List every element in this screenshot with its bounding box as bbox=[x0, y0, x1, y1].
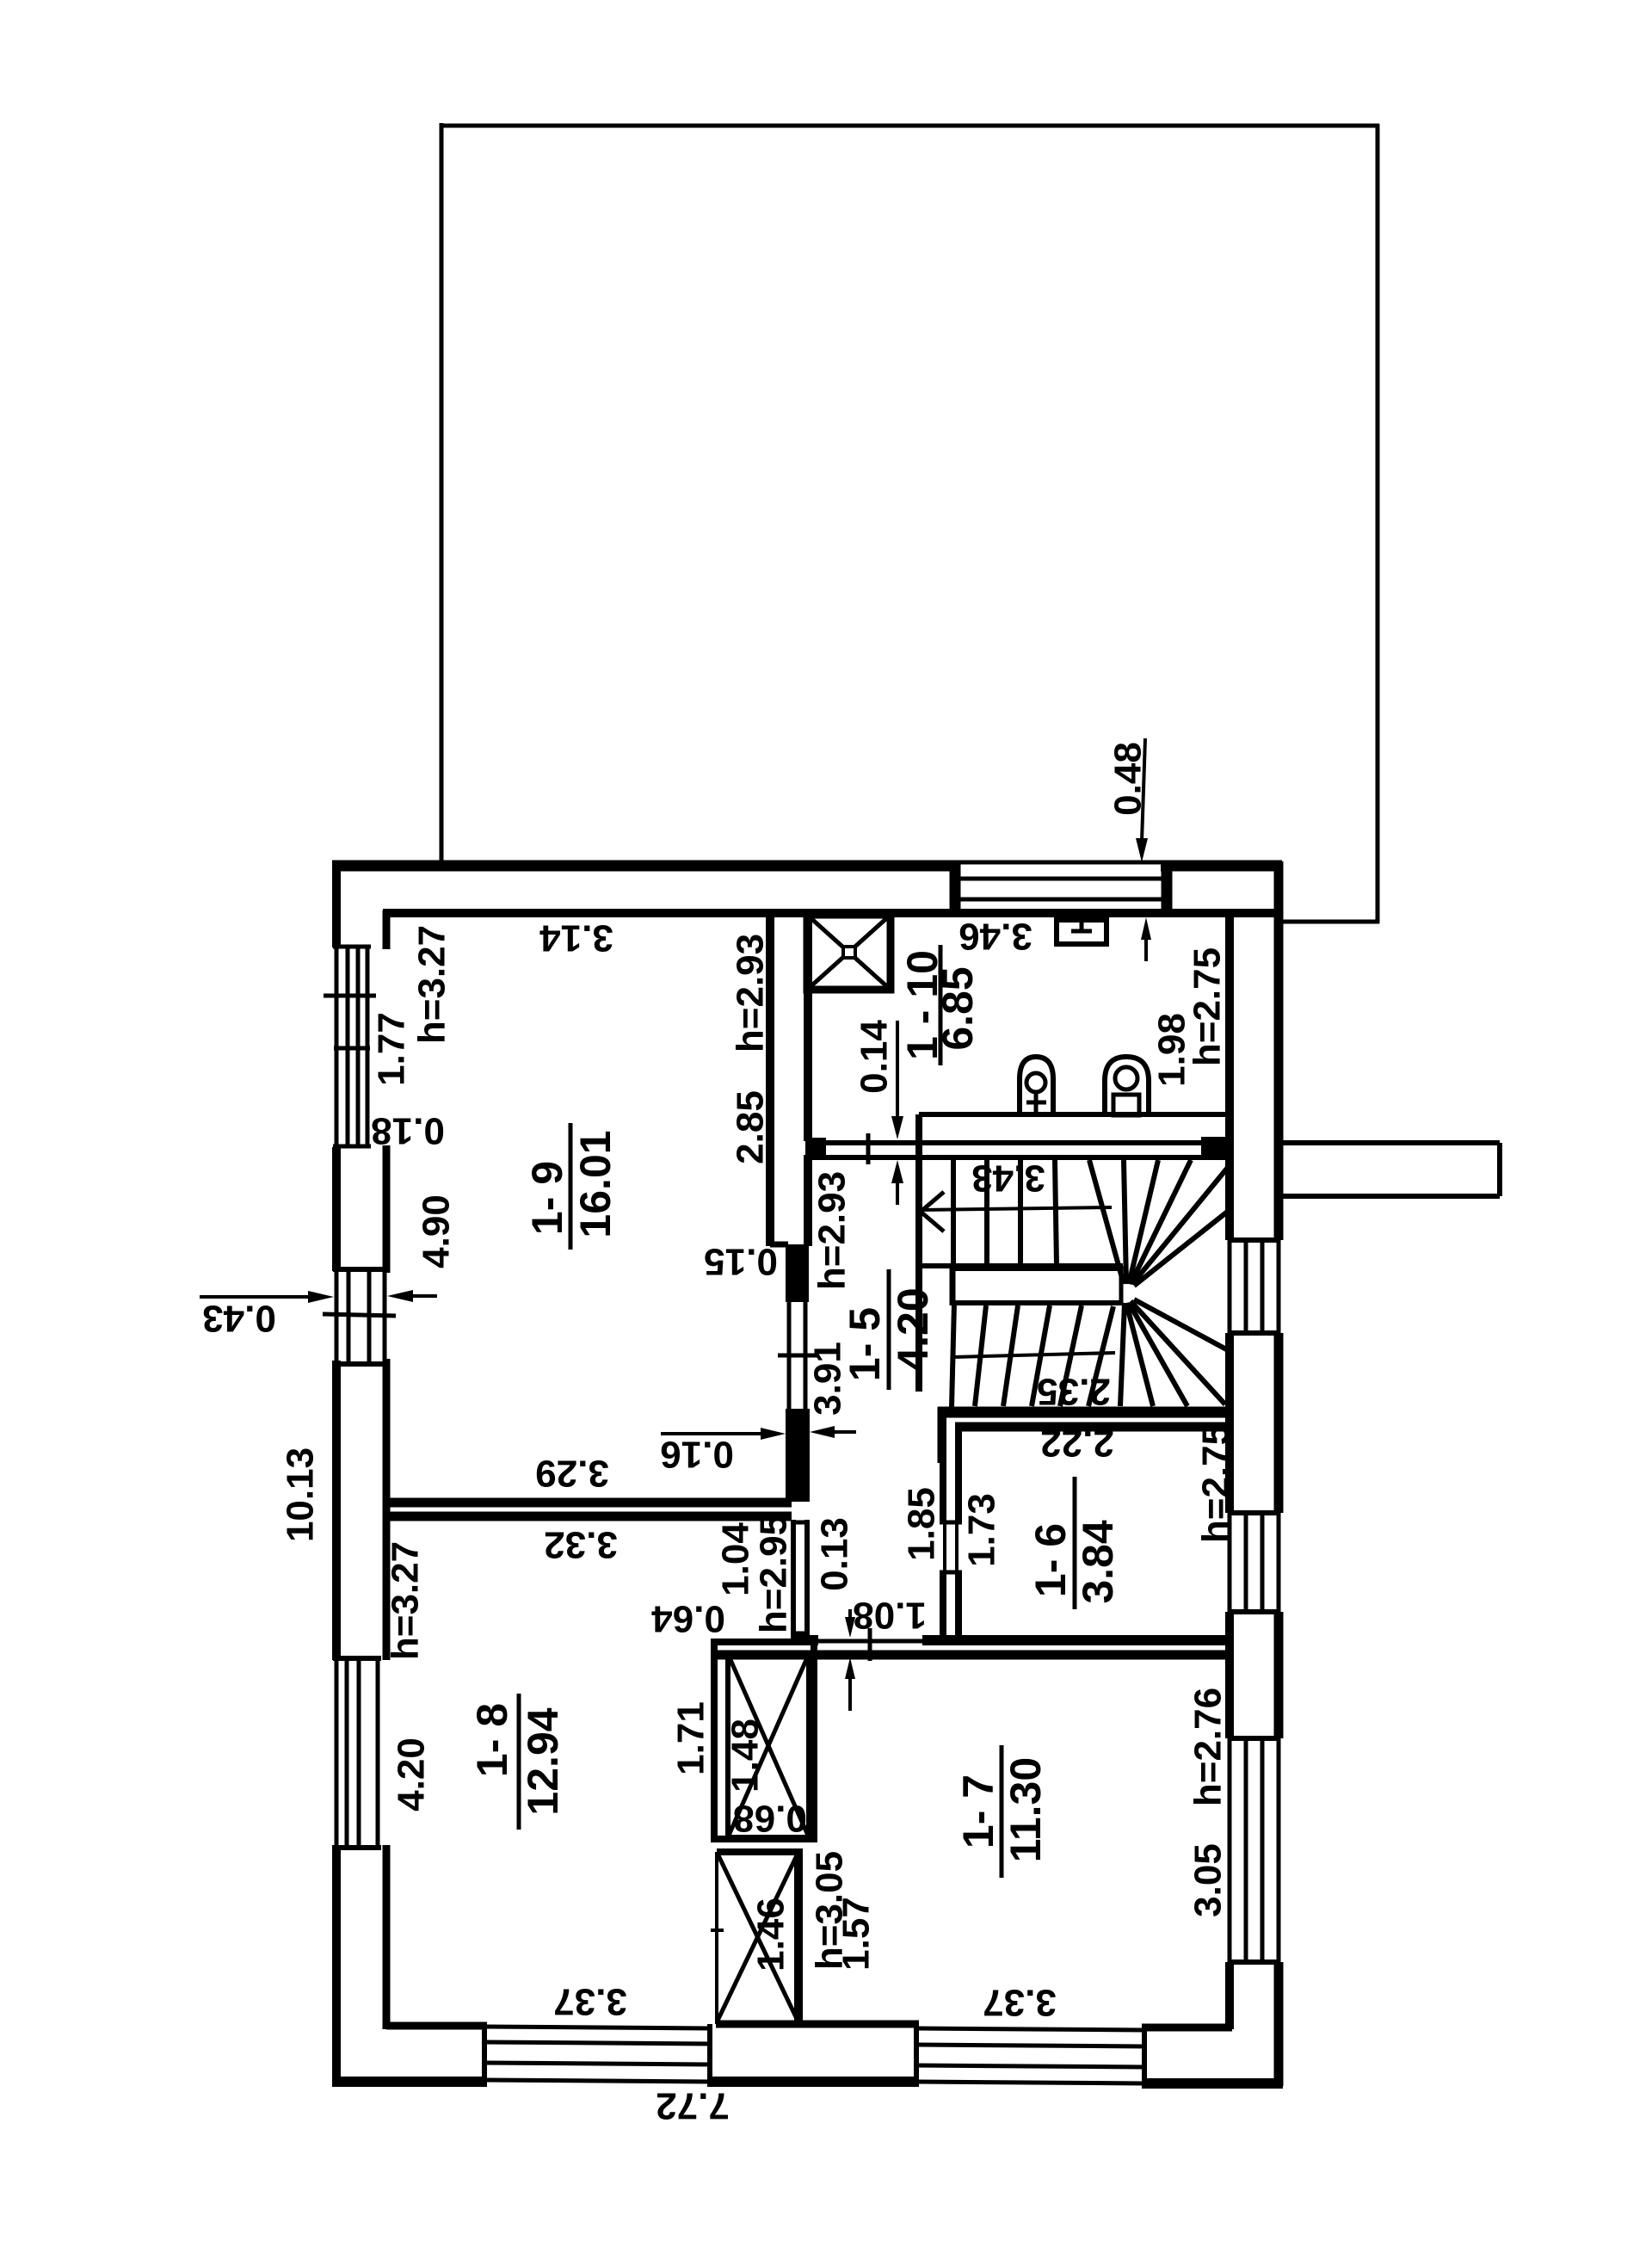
svg-text:4.20: 4.20 bbox=[391, 1737, 433, 1811]
svg-text:3.91: 3.91 bbox=[807, 1342, 849, 1416]
svg-text:6.85: 6.85 bbox=[934, 966, 982, 1050]
svg-text:0.13: 0.13 bbox=[814, 1517, 856, 1591]
svg-text:0.48: 0.48 bbox=[1107, 742, 1150, 816]
svg-text:3.05: 3.05 bbox=[1187, 1843, 1230, 1917]
svg-text:1.48: 1.48 bbox=[724, 1719, 767, 1793]
svg-text:2.22: 2.22 bbox=[1040, 1423, 1114, 1465]
svg-text:1.04: 1.04 bbox=[715, 1522, 757, 1596]
svg-text:1.08: 1.08 bbox=[853, 1595, 927, 1637]
svg-text:h=2.95: h=2.95 bbox=[753, 1515, 795, 1633]
svg-text:1.57: 1.57 bbox=[835, 1897, 878, 1971]
svg-text:h=2.75: h=2.75 bbox=[1187, 947, 1229, 1066]
svg-text:0.68: 0.68 bbox=[733, 1798, 807, 1840]
svg-text:0.16: 0.16 bbox=[660, 1434, 734, 1476]
svg-text:h=2.76: h=2.76 bbox=[1187, 1688, 1230, 1806]
svg-text:1- 7: 1- 7 bbox=[954, 1774, 1002, 1848]
svg-text:1- 9: 1- 9 bbox=[523, 1161, 571, 1235]
svg-text:3.32: 3.32 bbox=[544, 1524, 618, 1566]
svg-text:1.77: 1.77 bbox=[371, 1012, 413, 1086]
svg-text:1.46: 1.46 bbox=[750, 1898, 792, 1972]
svg-text:0.64: 0.64 bbox=[651, 1598, 725, 1640]
svg-text:3.43: 3.43 bbox=[971, 1157, 1045, 1200]
svg-text:11.30: 11.30 bbox=[1002, 1757, 1050, 1862]
svg-text:3.29: 3.29 bbox=[535, 1453, 609, 1495]
svg-text:h=2.93: h=2.93 bbox=[811, 1171, 854, 1290]
svg-text:2.85: 2.85 bbox=[730, 1090, 772, 1164]
svg-text:0.15: 0.15 bbox=[704, 1241, 778, 1283]
svg-text:0.14: 0.14 bbox=[854, 1020, 896, 1094]
svg-text:4.90: 4.90 bbox=[416, 1194, 458, 1268]
svg-text:16.01: 16.01 bbox=[571, 1130, 619, 1237]
svg-text:1.73: 1.73 bbox=[961, 1493, 1003, 1567]
svg-text:10.13: 10.13 bbox=[280, 1447, 322, 1542]
svg-text:1- 8: 1- 8 bbox=[468, 1703, 516, 1777]
svg-text:12.94: 12.94 bbox=[519, 1707, 567, 1815]
svg-text:7.72: 7.72 bbox=[656, 2085, 730, 2127]
svg-text:3.84: 3.84 bbox=[1074, 1520, 1122, 1604]
svg-text:h=3.27: h=3.27 bbox=[385, 1541, 427, 1660]
svg-text:2.35: 2.35 bbox=[1037, 1371, 1111, 1413]
svg-text:h=2.93: h=2.93 bbox=[730, 934, 772, 1052]
svg-text:h=3.27: h=3.27 bbox=[411, 925, 453, 1044]
svg-text:0.18: 0.18 bbox=[371, 1110, 445, 1152]
svg-text:1.71: 1.71 bbox=[670, 1701, 712, 1775]
svg-text:1.85: 1.85 bbox=[901, 1487, 943, 1561]
svg-text:4.20: 4.20 bbox=[889, 1287, 937, 1371]
svg-text:3.37: 3.37 bbox=[553, 1981, 627, 2023]
svg-text:h=2.75: h=2.75 bbox=[1195, 1424, 1237, 1543]
svg-text:0.43: 0.43 bbox=[202, 1298, 276, 1340]
svg-text:3.37: 3.37 bbox=[983, 1982, 1057, 2024]
svg-text:3.14: 3.14 bbox=[539, 917, 613, 960]
svg-text:3.46: 3.46 bbox=[959, 916, 1032, 958]
svg-text:1- 6: 1- 6 bbox=[1026, 1523, 1075, 1597]
